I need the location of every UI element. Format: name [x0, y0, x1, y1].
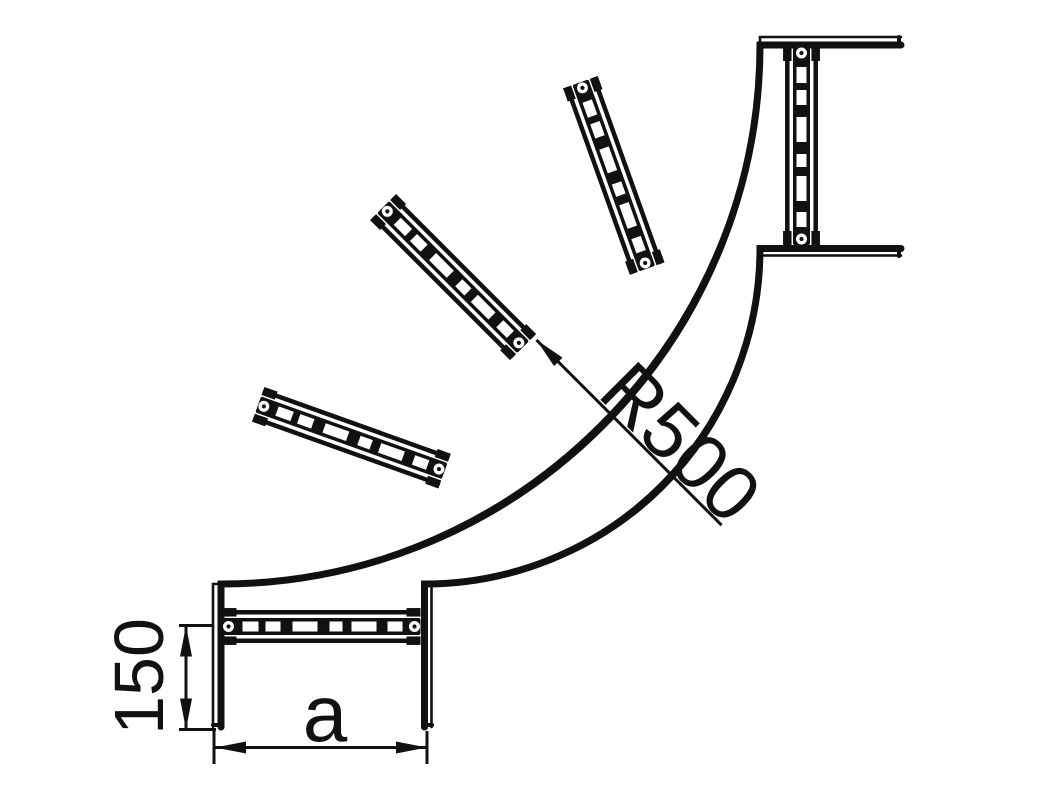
- rung-rivet-center: [412, 624, 416, 628]
- drawing-page: 150aR500: [0, 0, 1038, 812]
- rung-slot: [352, 622, 377, 632]
- rung-slot: [388, 622, 403, 632]
- rung-slot: [797, 90, 807, 105]
- rung-slot: [797, 117, 807, 142]
- dimension-label-ladder_width: a: [303, 669, 348, 758]
- rung-rivet-center: [799, 237, 803, 241]
- rung-slot: [330, 622, 343, 632]
- rung-slot: [293, 622, 318, 632]
- rung: [370, 194, 536, 360]
- rung-flange-edge: [813, 47, 818, 245]
- rung: [563, 76, 664, 275]
- rung-flange-edge: [223, 610, 421, 615]
- rung-slot: [797, 176, 807, 201]
- rung-flange-edge: [392, 195, 535, 338]
- rung-slot: [797, 67, 807, 83]
- rung-slot: [797, 212, 807, 227]
- dimension-a: a: [214, 669, 427, 764]
- dimension-arrow: [215, 742, 246, 754]
- rung: [783, 47, 820, 245]
- dimension-arrow: [180, 626, 192, 657]
- rung-rivet-center: [226, 624, 230, 628]
- rung: [223, 608, 421, 645]
- rung-slot: [243, 622, 259, 632]
- dimension-label-rung_to_end: 150: [100, 618, 178, 735]
- rung: [252, 387, 451, 488]
- cable-ladder-drawing: 150aR500: [0, 0, 1038, 812]
- rung-flange-edge: [223, 638, 421, 643]
- rung-slot: [797, 154, 807, 167]
- dimension-arrow: [180, 699, 192, 730]
- rung-flange-edge: [785, 47, 790, 245]
- rung-flange-edge: [371, 216, 514, 359]
- dimension-150: 150: [100, 618, 216, 735]
- rung-rivet-center: [799, 51, 803, 55]
- dimension-arrow: [396, 742, 427, 754]
- rung-slot: [266, 622, 281, 632]
- dimension-label-bend_radius: R500: [584, 345, 778, 539]
- dimension-radius: R500: [536, 340, 778, 539]
